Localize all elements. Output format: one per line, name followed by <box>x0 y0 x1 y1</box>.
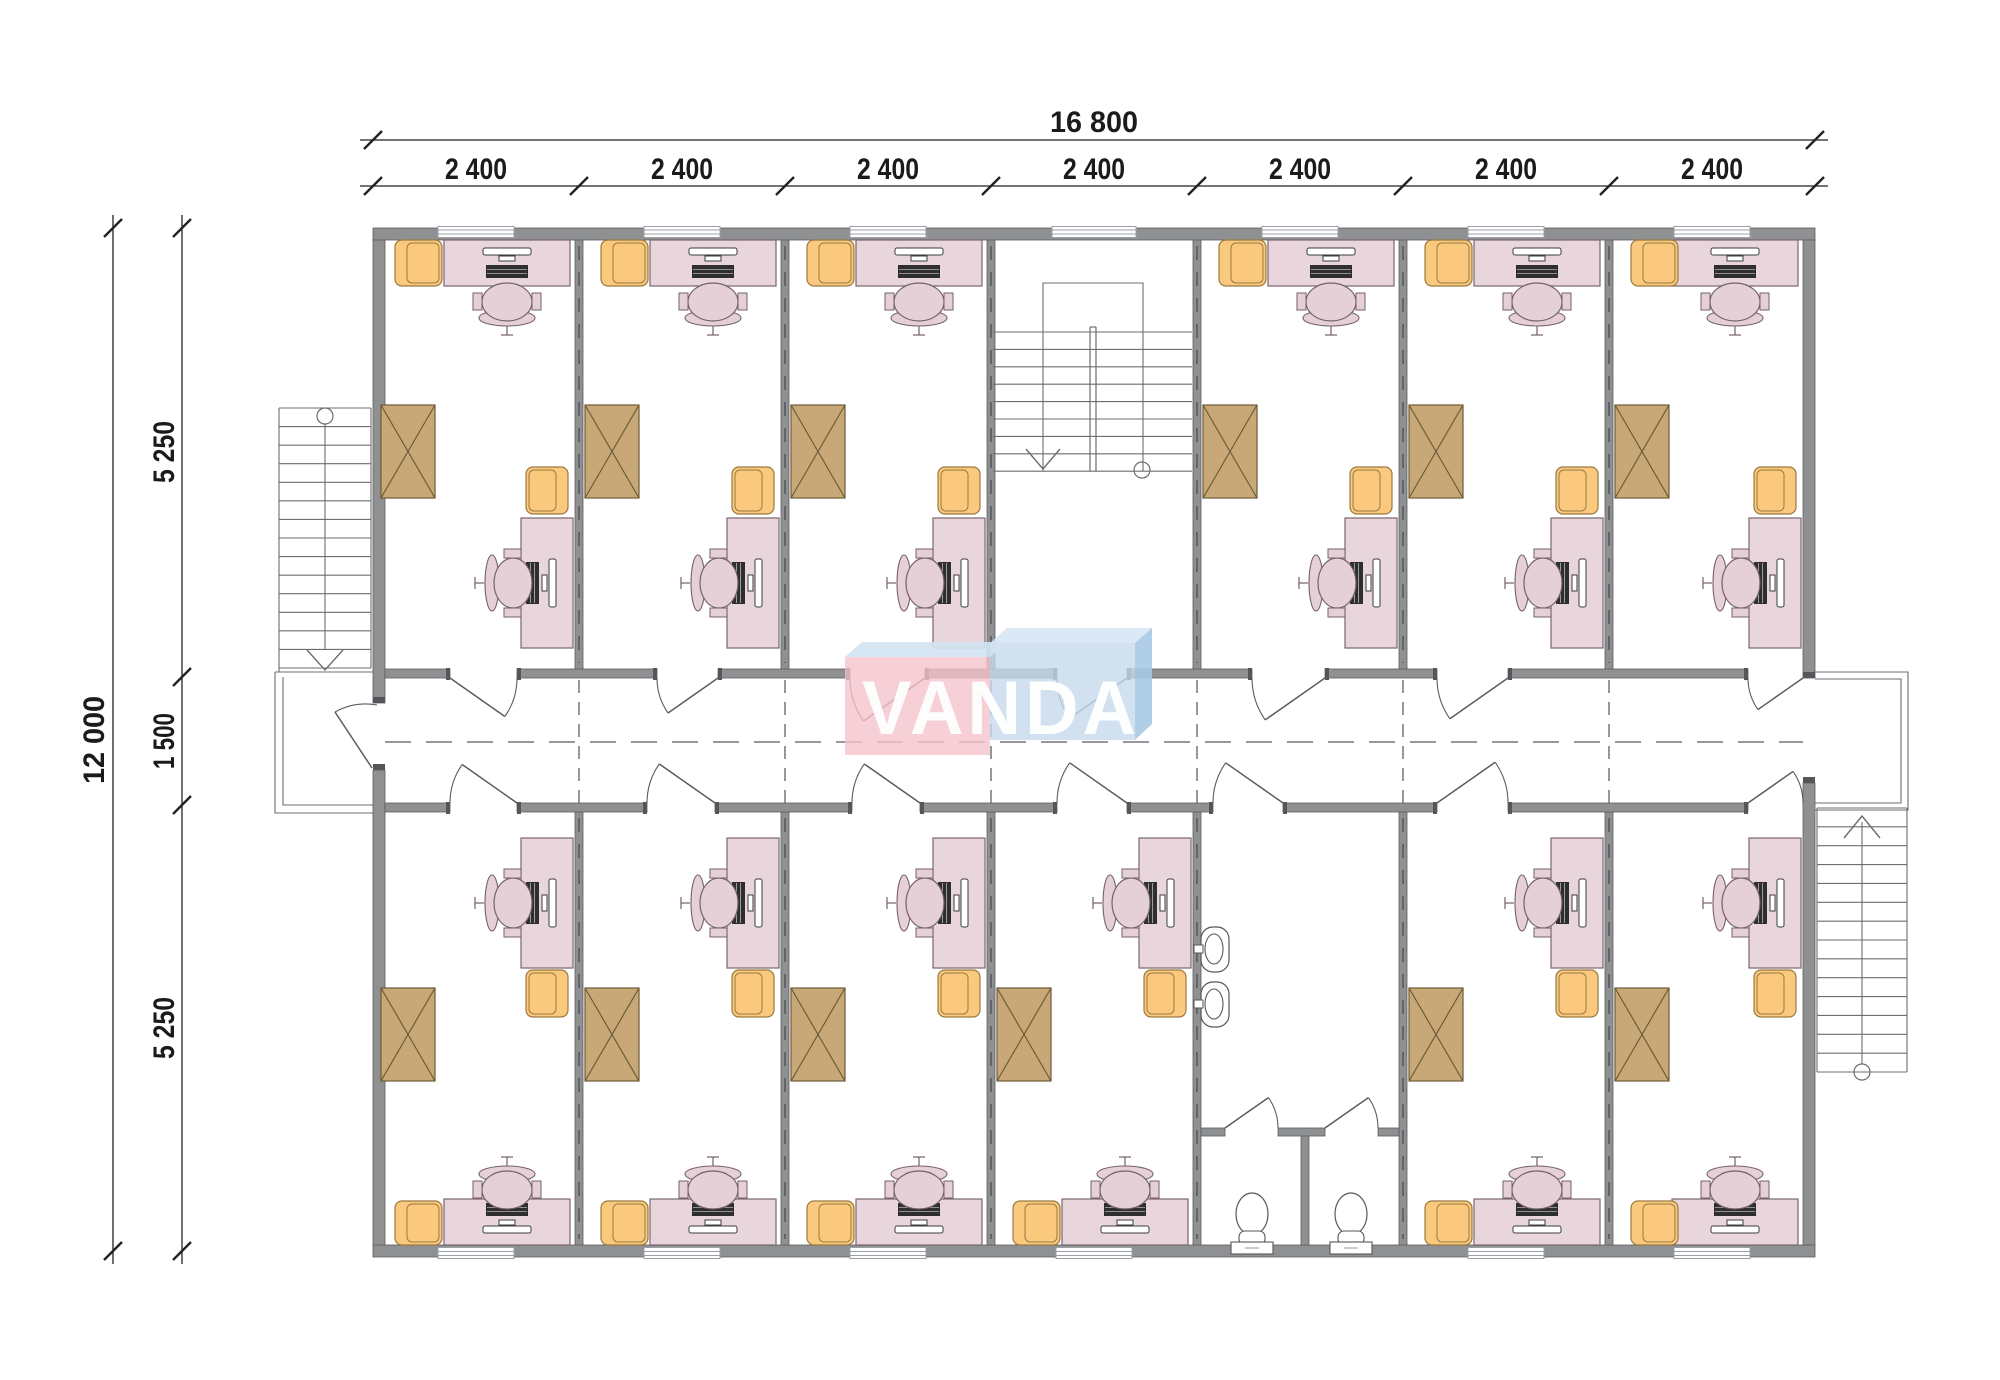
corridor-wall-south <box>1283 803 1437 812</box>
exterior-wall-east <box>1803 783 1815 1245</box>
computer-monitor <box>549 879 556 927</box>
computer-keyboard <box>1310 265 1352 278</box>
computer-monitor <box>483 1226 531 1233</box>
corridor-wall-south <box>385 803 450 812</box>
door-leaf <box>462 765 517 803</box>
corridor-wall-south <box>517 803 647 812</box>
window <box>1468 227 1544 238</box>
corridor-wall-north <box>385 669 450 678</box>
office-chair-armrest <box>738 1181 747 1198</box>
window <box>1674 1248 1750 1259</box>
armchair <box>1425 1201 1472 1245</box>
vanda-watermark: VANDA <box>845 628 1152 755</box>
door-jamb-cap <box>1803 672 1815 678</box>
computer-monitor <box>895 248 943 255</box>
landing-outline <box>275 672 373 813</box>
computer-monitor <box>1579 559 1586 607</box>
office-chair <box>1512 1171 1562 1209</box>
door-swing-arc <box>1213 763 1226 803</box>
office-chair-armrest <box>1122 928 1139 937</box>
office-chair <box>1512 283 1562 321</box>
monitor-stand <box>542 575 547 591</box>
armchair <box>1425 240 1472 286</box>
office-chair-armrest <box>1297 293 1306 310</box>
door-leaf <box>1265 678 1325 720</box>
office-chair <box>1100 1171 1150 1209</box>
office-chair <box>494 878 532 928</box>
monitor-stand <box>748 575 753 591</box>
office-chair-armrest <box>1760 293 1769 310</box>
dim-label-row-bottom: 5 250 <box>148 997 181 1059</box>
door-jamb-cap <box>1433 802 1437 814</box>
door-jamb-cap <box>446 802 450 814</box>
armchair <box>1754 467 1796 514</box>
office-chair-armrest <box>916 549 933 558</box>
office-chair <box>1710 1171 1760 1209</box>
window <box>850 1248 926 1259</box>
office-chair-armrest <box>1534 928 1551 937</box>
door-swing-arc <box>852 764 864 803</box>
office-chair <box>700 878 738 928</box>
door-leaf <box>1225 1098 1268 1128</box>
door-jamb-cap <box>1433 668 1437 680</box>
monitor-stand <box>705 1220 721 1225</box>
monitor-stand <box>954 895 959 911</box>
armchair <box>732 970 774 1017</box>
door-jamb-cap <box>1744 668 1748 680</box>
door-jamb-cap <box>643 802 647 814</box>
office-chair-armrest <box>1091 1181 1100 1198</box>
bathroom-partition-wall <box>1278 1128 1325 1136</box>
computer-monitor <box>1513 1226 1561 1233</box>
office-chair-armrest <box>1760 1181 1769 1198</box>
office-chair-armrest <box>885 293 894 310</box>
door-jamb-cap <box>373 764 385 770</box>
office-chair-armrest <box>1534 608 1551 617</box>
bathroom-partition-wall <box>1378 1128 1399 1136</box>
door-swing-arc <box>647 764 659 803</box>
office-chair-armrest <box>710 928 727 937</box>
floor-plan-drawing: 16 800 2 400 2 400 2 400 2 400 2 400 2 4… <box>0 0 2000 1380</box>
door-swing-arc <box>1748 678 1758 710</box>
door-swing-arc <box>657 678 668 713</box>
computer-keyboard <box>1516 265 1558 278</box>
door-jamb-cap <box>1325 668 1329 680</box>
door-swing-arc <box>1268 1098 1278 1128</box>
office-chair-armrest <box>916 608 933 617</box>
office-chair-armrest <box>504 549 521 558</box>
landing-outline <box>283 677 373 805</box>
monitor-stand <box>1529 1220 1545 1225</box>
office-chair-armrest <box>710 608 727 617</box>
computer-monitor <box>961 559 968 607</box>
sink-tap <box>1194 945 1203 953</box>
door-swing-arc <box>505 678 517 716</box>
office-chair-armrest <box>1732 928 1749 937</box>
dim-label-bay-2: 2 400 <box>651 153 713 186</box>
door-jamb-cap <box>1053 802 1057 814</box>
office-chair <box>906 878 944 928</box>
office-chair <box>1524 878 1562 928</box>
office-chair-armrest <box>679 1181 688 1198</box>
computer-monitor <box>1711 1226 1759 1233</box>
office-chair <box>482 1171 532 1209</box>
office-chair <box>700 558 738 608</box>
office-chair-armrest <box>1732 608 1749 617</box>
office-chair-armrest <box>1732 869 1749 878</box>
desk <box>1672 240 1798 286</box>
monitor-stand <box>1770 895 1775 911</box>
office-chair <box>1306 283 1356 321</box>
door-jamb-cap <box>1803 777 1815 783</box>
desk <box>1474 240 1600 286</box>
armchair <box>807 1201 854 1245</box>
dim-label-bay-7: 2 400 <box>1681 153 1743 186</box>
office-chair-armrest <box>1356 293 1365 310</box>
computer-monitor <box>1167 879 1174 927</box>
door-jamb-cap <box>1283 802 1287 814</box>
office-chair-armrest <box>532 1181 541 1198</box>
door-swing-arc <box>335 704 377 712</box>
armchair <box>938 467 980 514</box>
door-jamb-cap <box>517 802 521 814</box>
door-leaf <box>1450 678 1508 719</box>
corridor-wall-north <box>517 669 657 678</box>
armchair <box>1350 467 1392 514</box>
monitor-stand <box>1323 256 1339 261</box>
corridor-wall-north <box>1325 669 1437 678</box>
office-chair-armrest <box>885 1181 894 1198</box>
office-chair <box>494 558 532 608</box>
computer-keyboard <box>692 265 734 278</box>
corridor-wall-north <box>1508 669 1748 678</box>
office-chair-armrest <box>1122 869 1139 878</box>
monitor-stand <box>1529 256 1545 261</box>
computer-monitor <box>689 1226 737 1233</box>
computer-monitor <box>755 879 762 927</box>
monitor-stand <box>1572 575 1577 591</box>
office-chair-armrest <box>1562 1181 1571 1198</box>
door-leaf <box>1748 771 1793 803</box>
office-chair-armrest <box>473 293 482 310</box>
armchair <box>395 240 442 286</box>
window <box>438 227 514 238</box>
monitor-stand <box>1770 575 1775 591</box>
office-chair-armrest <box>1534 869 1551 878</box>
monitor-stand <box>1727 256 1743 261</box>
toilet-bowl <box>1335 1193 1367 1235</box>
door-jamb-cap <box>1209 802 1213 814</box>
computer-monitor <box>549 559 556 607</box>
dim-label-row-top: 5 250 <box>148 421 181 483</box>
door-swing-arc <box>1793 771 1803 803</box>
office-chair-armrest <box>1503 293 1512 310</box>
office-chair-armrest <box>916 869 933 878</box>
desk <box>856 240 982 286</box>
door-leaf <box>1070 763 1127 803</box>
window <box>644 1248 720 1259</box>
office-chair <box>688 283 738 321</box>
door-swing-arc <box>1368 1098 1378 1128</box>
computer-monitor <box>755 559 762 607</box>
corridor-wall-south <box>715 803 852 812</box>
office-chair-armrest <box>504 608 521 617</box>
door-leaf <box>668 678 718 713</box>
computer-monitor <box>1513 248 1561 255</box>
stair-direction-arrow <box>307 650 343 670</box>
monitor-stand <box>1572 895 1577 911</box>
monitor-stand <box>1366 575 1371 591</box>
office-chair <box>894 1171 944 1209</box>
office-chair-armrest <box>1503 1181 1512 1198</box>
door-leaf <box>864 764 920 803</box>
toilet-bowl <box>1236 1193 1268 1235</box>
office-chair-armrest <box>1534 549 1551 558</box>
armchair <box>1631 1201 1678 1245</box>
door-leaf <box>1437 762 1495 803</box>
computer-monitor <box>689 248 737 255</box>
dim-label-bay-1: 2 400 <box>445 153 507 186</box>
logo-text: VANDA <box>862 666 1140 751</box>
office-chair <box>1710 283 1760 321</box>
door-leaf <box>1758 678 1803 710</box>
armchair <box>526 467 568 514</box>
door-leaf <box>659 764 715 803</box>
office-chair <box>1722 878 1760 928</box>
computer-monitor <box>895 1226 943 1233</box>
office-chair-armrest <box>710 869 727 878</box>
office-chair <box>1524 558 1562 608</box>
toilet-stall-divider <box>1301 1136 1309 1245</box>
office-chair-armrest <box>1701 293 1710 310</box>
office-chair-armrest <box>473 1181 482 1198</box>
door-jamb-cap <box>517 668 521 680</box>
door-jamb-cap <box>715 802 719 814</box>
monitor-stand <box>748 895 753 911</box>
window <box>1052 227 1136 238</box>
office-chair <box>482 283 532 321</box>
office-chair-armrest <box>504 869 521 878</box>
office-chair-armrest <box>916 928 933 937</box>
monitor-stand <box>499 256 515 261</box>
door-jamb-cap <box>1127 802 1131 814</box>
armchair <box>1754 970 1796 1017</box>
armchair <box>1556 467 1598 514</box>
door-jamb-cap <box>653 668 657 680</box>
computer-monitor <box>1373 559 1380 607</box>
window <box>1056 1248 1132 1259</box>
door-swing-arc <box>1495 762 1508 803</box>
office-chair-armrest <box>504 928 521 937</box>
door-leaf <box>450 678 505 716</box>
office-chair <box>894 283 944 321</box>
office-chair <box>688 1171 738 1209</box>
monitor-stand <box>1117 1220 1133 1225</box>
dim-label-bay-6: 2 400 <box>1475 153 1537 186</box>
door-jamb-cap <box>373 697 385 703</box>
dim-label-total-width: 16 800 <box>1050 106 1138 139</box>
landing-outline <box>1815 672 1908 810</box>
monitor-stand <box>911 256 927 261</box>
computer-monitor <box>961 879 968 927</box>
window <box>1262 227 1338 238</box>
armchair <box>1219 240 1266 286</box>
armchair <box>601 240 648 286</box>
office-chair-armrest <box>738 293 747 310</box>
office-chair-armrest <box>1562 293 1571 310</box>
office-chair-armrest <box>1150 1181 1159 1198</box>
monitor-stand <box>705 256 721 261</box>
office-chair <box>1112 878 1150 928</box>
computer-monitor <box>1101 1226 1149 1233</box>
office-chair <box>1722 558 1760 608</box>
door-swing-arc <box>450 765 462 803</box>
floor-plan-page: 16 800 2 400 2 400 2 400 2 400 2 400 2 4… <box>0 0 2000 1380</box>
window <box>850 227 926 238</box>
door-jamb-cap <box>446 668 450 680</box>
computer-monitor <box>1777 559 1784 607</box>
dim-label-total-height: 12 000 <box>78 696 111 784</box>
door-swing-arc <box>1252 678 1265 720</box>
dim-label-corridor: 1 500 <box>148 713 181 769</box>
office-chair-armrest <box>1328 608 1345 617</box>
armchair <box>526 970 568 1017</box>
office-chair-armrest <box>679 293 688 310</box>
monitor-stand <box>499 1220 515 1225</box>
dim-label-bay-3: 2 400 <box>857 153 919 186</box>
window <box>1468 1248 1544 1259</box>
computer-keyboard <box>898 265 940 278</box>
door-jamb-cap <box>1508 802 1512 814</box>
office-chair <box>1318 558 1356 608</box>
stair-start-circle <box>317 408 333 424</box>
office-chair-armrest <box>1732 549 1749 558</box>
door-jamb-cap <box>1508 668 1512 680</box>
corridor-wall-south <box>920 803 1057 812</box>
bathroom-partition-wall <box>1201 1128 1225 1136</box>
door-leaf <box>1226 763 1283 803</box>
monitor-stand <box>1160 895 1165 911</box>
corridor-wall-north <box>718 669 850 678</box>
computer-monitor <box>1711 248 1759 255</box>
window <box>1674 227 1750 238</box>
monitor-stand <box>911 1220 927 1225</box>
office-chair-armrest <box>944 1181 953 1198</box>
door-jamb-cap <box>1744 802 1748 814</box>
stairwell-landing-outline <box>1043 283 1143 332</box>
computer-monitor <box>483 248 531 255</box>
armchair <box>1556 970 1598 1017</box>
desk <box>650 240 776 286</box>
monitor-stand <box>542 895 547 911</box>
office-chair-armrest <box>944 293 953 310</box>
computer-monitor <box>1307 248 1355 255</box>
dim-label-bay-4: 2 400 <box>1063 153 1125 186</box>
armchair <box>938 970 980 1017</box>
corridor-wall-south <box>1127 803 1213 812</box>
computer-keyboard <box>1714 265 1756 278</box>
office-chair <box>906 558 944 608</box>
door-leaf <box>1325 1098 1368 1128</box>
door-leaf <box>335 712 372 768</box>
logo-top-flap-right <box>990 628 1152 643</box>
armchair <box>1013 1201 1060 1245</box>
office-chair-armrest <box>532 293 541 310</box>
corridor-wall-south <box>1508 803 1748 812</box>
window <box>438 1248 514 1259</box>
window <box>644 227 720 238</box>
computer-monitor <box>1777 879 1784 927</box>
armchair <box>1144 970 1186 1017</box>
office-chair-armrest <box>1701 1181 1710 1198</box>
door-swing-arc <box>1057 763 1070 803</box>
armchair <box>395 1201 442 1245</box>
exterior-wall-east <box>1803 240 1815 678</box>
desk <box>444 240 570 286</box>
computer-keyboard <box>486 265 528 278</box>
sink-tap <box>1194 1000 1203 1008</box>
stair-start-circle <box>1134 462 1150 478</box>
landing-outline <box>1815 679 1901 803</box>
door-swing-arc <box>1437 678 1450 719</box>
logo-top-flap-left <box>845 642 1007 657</box>
armchair <box>601 1201 648 1245</box>
office-chair-armrest <box>1328 549 1345 558</box>
door-jamb-cap <box>1248 668 1252 680</box>
door-jamb-cap <box>718 668 722 680</box>
door-jamb-cap <box>920 802 924 814</box>
desk <box>1268 240 1394 286</box>
door-jamb-cap <box>848 802 852 814</box>
office-chair-armrest <box>710 549 727 558</box>
monitor-stand <box>954 575 959 591</box>
armchair <box>1631 240 1678 286</box>
armchair <box>807 240 854 286</box>
computer-monitor <box>1579 879 1586 927</box>
monitor-stand <box>1727 1220 1743 1225</box>
dim-label-bay-5: 2 400 <box>1269 153 1331 186</box>
armchair <box>732 467 774 514</box>
